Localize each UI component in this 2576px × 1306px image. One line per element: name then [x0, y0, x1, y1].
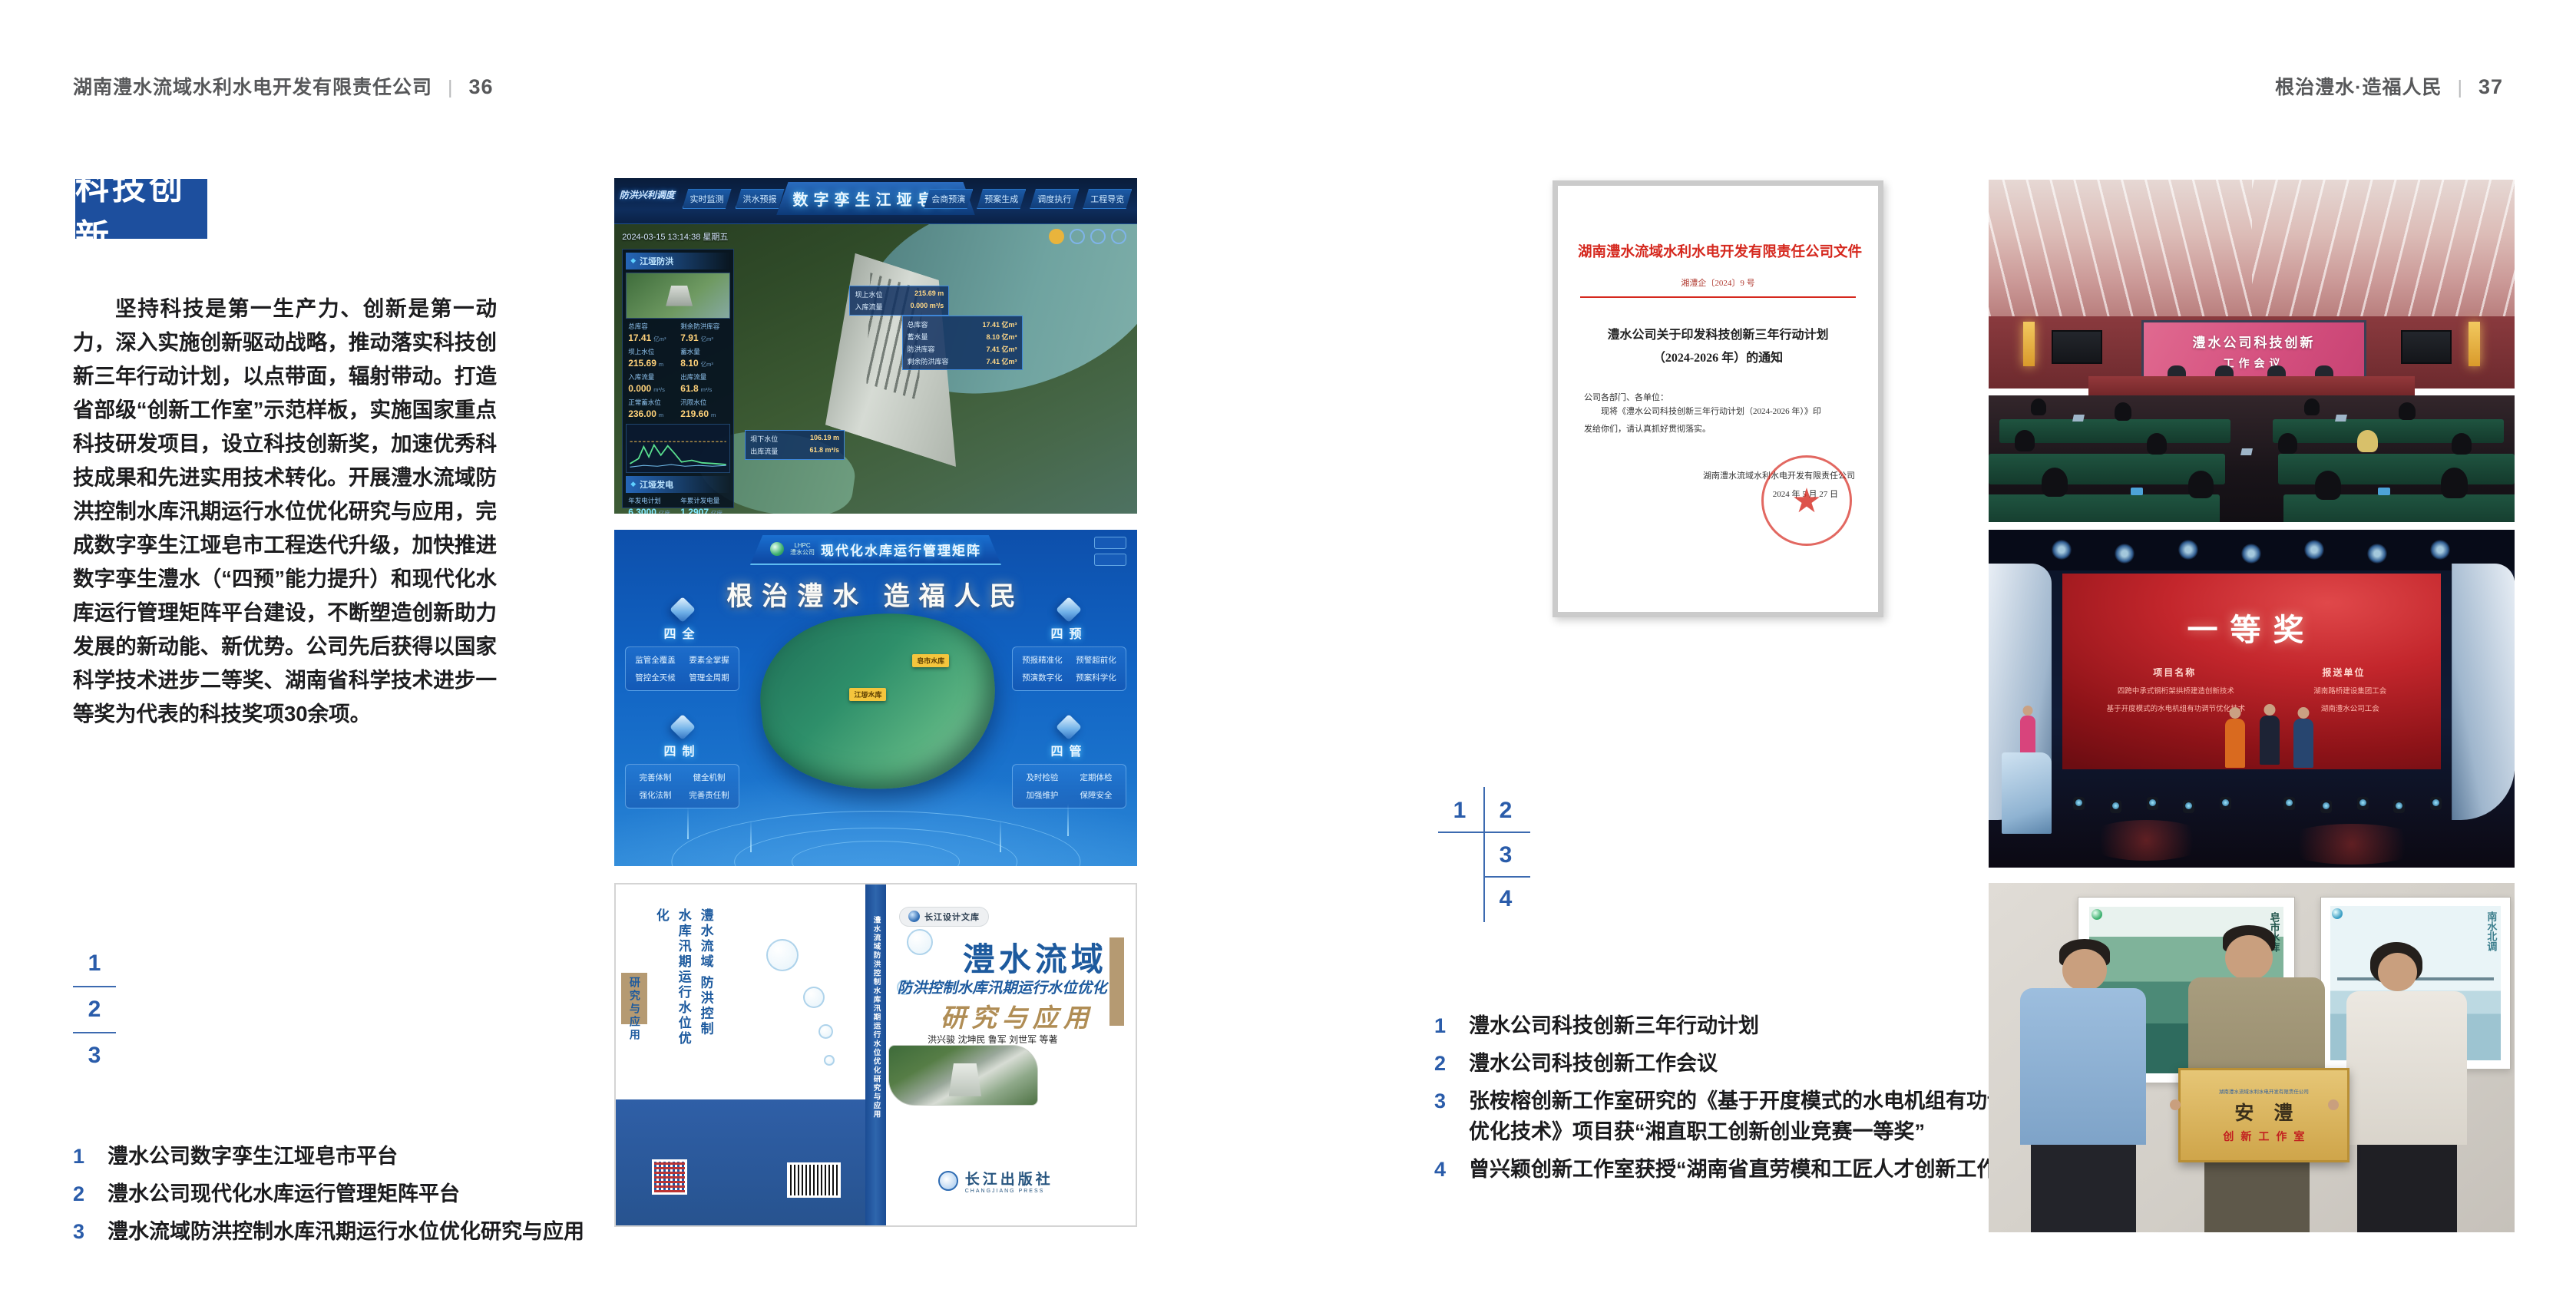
matrix-title-plate: LHPC澧水公司 现代化水库运行管理矩阵 — [750, 535, 1001, 565]
backcover-vertical-title: 澧水流域 防洪控制水库汛期运行水位优化 — [650, 908, 716, 1051]
caption-number: 3 — [73, 1216, 107, 1247]
frontcover-tan-strip — [1109, 937, 1124, 1026]
body-paragraph: 坚持科技是第一生产力、创新是第一动力，深入实施创新驱动战略，推动落实科技创新三年… — [73, 292, 497, 731]
stage-light-fixture — [2183, 800, 2194, 813]
unit-lines: 湖南路桥建设集团工会 湖南澧水公司工会 — [2274, 683, 2426, 719]
ceiling — [1989, 180, 2515, 316]
map-label-zaoshi: 皂市水库 — [912, 654, 949, 667]
caption-number: 2 — [1434, 1048, 1469, 1079]
audience-yellow-jacket — [2357, 430, 2378, 452]
seal-star-icon: ★ — [1791, 481, 1821, 521]
wall-lamp — [2469, 322, 2480, 366]
page-number-left: 36 — [469, 75, 494, 98]
figure-index-3: 3 — [73, 1033, 116, 1078]
book-title-tail: 研究与应用 — [941, 997, 1094, 1034]
audience-desk — [2283, 494, 2515, 522]
caption-text: 澧水流域防洪控制水库汛期运行水位优化研究与应用 — [107, 1216, 584, 1247]
flood-panel-title: 江垭防洪 — [640, 255, 673, 267]
caption-item: 2 澧水公司现代化水库运行管理矩阵平台 — [73, 1179, 584, 1209]
audience-silhouette — [2315, 471, 2341, 500]
stage-light-fixture — [2073, 797, 2085, 810]
audience-silhouette — [2031, 398, 2046, 415]
stat-cell: 总库容17.41亿m³ — [628, 322, 676, 345]
stage-light-fixture — [2220, 797, 2231, 810]
spotlight-icon — [2367, 544, 2387, 564]
qr-code — [652, 1159, 687, 1195]
man-blue-polo — [2020, 988, 2146, 1146]
cube-icon — [1057, 597, 1083, 623]
person-head — [2378, 953, 2417, 991]
anchor-icon: ◆ — [630, 256, 636, 265]
person-trousers — [2031, 1145, 2136, 1232]
header-separator: | — [448, 77, 454, 98]
audience-silhouette — [2147, 433, 2167, 455]
document-salutation: 公司各部门、各单位： — [1558, 391, 1878, 403]
tab-dispatch-execute: 调度执行 — [1030, 189, 1079, 209]
plaque-title: 安澧 — [2214, 1098, 2313, 1126]
figure-index-1: 1 — [73, 941, 116, 986]
barcode — [787, 1162, 841, 1198]
light-pillar — [750, 820, 752, 852]
spine-title: 澧水流域防洪控制水库汛期运行水位优化研究与应用 — [870, 916, 881, 1119]
tab-plan-generate: 预案生成 — [977, 189, 1026, 209]
lhpc-logo-icon — [2092, 909, 2102, 920]
caption-text: 澧水公司科技创新工作会议 — [1469, 1048, 1718, 1079]
person-trousers — [2204, 1152, 2310, 1232]
stat-cell: 汛限水位219.60m — [680, 398, 728, 421]
locate-icon — [1090, 229, 1106, 244]
lhpc-logo-icon — [2332, 908, 2343, 919]
innovation-studio-plaque: 湖南澧水流域水利水电开发有限责任公司 安澧 创新工作室 — [2178, 1068, 2350, 1162]
map-chip-capacity: 总库容17.41 亿m³ 蓄水量8.10 亿m³ 防洪库容7.41 亿m³ 剩余… — [902, 316, 1023, 370]
spotlight-icon — [2178, 540, 2198, 560]
magazine-spread: 湖南澧水流域水利水电开发有限责任公司|36 科技创新 坚持科技是第一生产力、创新… — [0, 0, 2576, 1306]
stage-light-fixture — [2393, 800, 2405, 813]
column-header-project: 项目名称 — [2153, 666, 2196, 679]
bubble-decoration — [824, 1055, 835, 1066]
plaque-header: 湖南澧水流域水利水电开发有限责任公司 — [2219, 1087, 2309, 1095]
screen-title-line1: 澧水公司科技创新 — [2192, 332, 2315, 351]
floor-reflection — [2278, 824, 2426, 865]
document-title: 澧水公司关于印发科技创新三年行动计划 （2024-2026 年）的通知 — [1558, 324, 1878, 371]
spotlight-icon — [2304, 540, 2324, 560]
photo-plaque-presentation: 皂市水库 南水北调 湖南澧水流域水利水电开发有限责任公司 安澧 创新工作室 — [1989, 883, 2515, 1232]
stage-light-fixture — [2147, 797, 2158, 810]
map-chip-downstream: 坝下水位106.19 m 出库流量61.8 m³/s — [745, 430, 845, 460]
power-stats-grid: 年发电计划6.3000亿度 年累计发电量1.2907亿度 月累计发电量3359.… — [626, 496, 730, 514]
caption-text: 张桉榕创新工作室研究的《基于开度模式的水电机组有功调节优化技术》项目获“湘直职工… — [1469, 1086, 2037, 1147]
hand — [2328, 1099, 2339, 1110]
company-name: 湖南澧水流域水利水电开发有限责任公司 — [73, 77, 432, 98]
flood-stats-grid: 总库容17.41亿m³ 剩余防洪库容7.91亿m³ 坝上水位215.69m 蓄水… — [626, 322, 730, 421]
backcover-subtitle: 研究与应用 — [627, 977, 643, 1042]
cube-icon — [670, 597, 696, 623]
right-figure-index: 1 2 3 4 — [1438, 787, 1530, 922]
book-scan: 澧水流域防洪控制水库汛期运行水位优化研究与应用 澧水流域 防洪控制水库汛期运行水… — [614, 883, 1137, 1227]
spotlight-icon — [2115, 544, 2135, 564]
award-title: 一等奖 — [2062, 605, 2441, 650]
stat-cell: 出库流量61.8m³/s — [680, 372, 728, 395]
caption-number: 1 — [73, 1141, 107, 1172]
caption-item: 2 澧水公司科技创新工作会议 — [1434, 1048, 2049, 1079]
person-head — [2062, 949, 2107, 991]
power-panel-header: ◆江垭发电 — [626, 476, 730, 493]
winner-orange-jacket — [2225, 719, 2245, 768]
person-trousers — [2357, 1145, 2457, 1232]
left-data-panel: ◆江垭防洪 总库容17.41亿m³ 剩余防洪库容7.91亿m³ 坝上水位215.… — [622, 249, 734, 509]
section-badge: 科技创新 — [75, 179, 207, 239]
dam-thumbnail — [626, 273, 730, 319]
caption-number: 1 — [1434, 1010, 1469, 1041]
stage-light-fixture — [2357, 797, 2369, 810]
publisher-block: 长江出版社 CHANGJIANG PRESS — [938, 1168, 1053, 1194]
series-badge: 长江设计文库 — [899, 907, 989, 927]
stage-light-fixture — [2430, 797, 2442, 810]
light-pillar — [1000, 820, 1001, 852]
audience-silhouette — [2042, 468, 2068, 497]
flood-panel-header: ◆江垭防洪 — [626, 253, 730, 269]
wall-tv — [2401, 330, 2452, 364]
caption-text: 澧水公司数字孪生江垭皂市平台 — [107, 1141, 398, 1172]
right-running-head: 根治澧水·造福人民|37 — [2275, 72, 2503, 100]
left-figure-index: 1 2 3 — [73, 941, 116, 1078]
tab-project-tour: 工程导览 — [1083, 189, 1132, 209]
poster-right-label: 南水北调 — [2484, 911, 2498, 951]
bubble-decoration — [818, 1024, 833, 1039]
fullscreen-button — [1094, 537, 1127, 549]
book-spine: 澧水流域防洪控制水库汛期运行水位优化研究与应用 — [865, 884, 886, 1225]
publisher-name-en: CHANGJIANG PRESS — [965, 1189, 1053, 1194]
stage-light-fixture — [2320, 800, 2332, 813]
dashboard-topbar: 防洪兴利调度 实时监测 洪水预报 防洪预警 数字孪生江垭皂市 会商预演 预案生成… — [614, 178, 1137, 224]
photo-award-stage: 一等奖 项目名称 报送单位 四跨中承式钢桁架拱桥建造创新技术 基于开度模式的水电… — [1989, 530, 2515, 868]
map-chip-upstream: 坝上水位215.69 m 入库流量0.000 m³/s — [849, 286, 949, 316]
stage-side-panel — [2452, 564, 2515, 820]
figure-index-3: 3 — [1490, 842, 1521, 868]
caption-number: 3 — [1434, 1086, 1469, 1116]
stat-cell: 入库流量0.000m³/s — [628, 372, 676, 395]
document-red-heading: 湖南澧水流域水利水电开发有限责任公司文件 — [1558, 241, 1878, 261]
ceiling-lights — [1989, 180, 2252, 316]
index-divider — [1483, 876, 1530, 878]
index-divider — [1483, 787, 1485, 922]
left-running-head: 湖南澧水流域水利水电开发有限责任公司|36 — [73, 72, 494, 100]
lhpc-logo-icon — [770, 542, 784, 556]
layers-icon — [1070, 229, 1085, 244]
dashboard-toolbar-icons — [1049, 229, 1126, 244]
audience-silhouette — [2441, 468, 2468, 498]
panel-siquan: 四全 监管全覆盖要素全掌握 管控全天候管理全周期 — [630, 600, 734, 691]
map-label-jiangya: 江垭水库 — [849, 688, 886, 701]
laptop — [2335, 415, 2347, 422]
page-number-right: 37 — [2478, 75, 2503, 98]
stat-cell: 年累计发电量1.2907亿度 — [680, 496, 728, 514]
winner-blue-jacket — [2293, 719, 2313, 768]
changjiang-design-logo-icon — [908, 911, 920, 922]
header-separator: | — [2457, 77, 2463, 98]
audience-silhouette — [2115, 402, 2131, 421]
tab-flood-forecast: 洪水预报 — [736, 189, 785, 209]
audience-silhouette — [2278, 433, 2297, 454]
book-title-sub: 防洪控制水库汛期运行水位优化 — [891, 975, 1107, 997]
anchor-icon: ◆ — [630, 480, 636, 488]
cube-icon — [1057, 714, 1083, 740]
red-rule — [1580, 296, 1856, 298]
caption-text: 曾兴颖创新工作室获授“湖南省直劳模和工匠人才创新工作室” — [1469, 1154, 2029, 1185]
figure-index-2: 2 — [73, 987, 116, 1032]
panel-siguan: 四管 及时检验定期体检 加强维护保障安全 — [1017, 718, 1121, 808]
tissue-box — [2131, 488, 2143, 495]
figure-index-1: 1 — [1444, 798, 1475, 824]
stat-cell: 剩余防洪库容7.91亿m³ — [680, 322, 728, 345]
matrix-title: 现代化水库运行管理矩阵 — [821, 540, 981, 559]
stat-cell: 坝上水位215.69m — [628, 347, 676, 370]
caption-number: 4 — [1434, 1154, 1469, 1185]
plaque-subtitle: 创新工作室 — [2216, 1129, 2311, 1144]
stat-cell: 年发电计划6.3000亿度 — [628, 496, 676, 514]
caption-number: 2 — [73, 1179, 107, 1209]
water-level-chart — [626, 424, 730, 473]
user-icon — [1049, 229, 1064, 244]
photo-meeting-room: 澧水公司科技创新 工作会议 — [1989, 180, 2515, 522]
presenter-suit — [2260, 716, 2280, 765]
audience-silhouette — [2452, 433, 2472, 455]
index-divider — [1438, 832, 1530, 833]
laptop — [2240, 448, 2253, 455]
panel-sizhi: 四制 完善体制健全机制 强化法制完善责任制 — [630, 718, 734, 808]
figure-matrix-platform: LHPC澧水公司 现代化水库运行管理矩阵 根治澧水 造福人民 皂市水库 江垭水库… — [614, 530, 1137, 866]
panel-siyu: 四预 预报精准化预警超前化 预演数字化预案科学化 — [1017, 600, 1121, 691]
caption-item: 3 张桉榕创新工作室研究的《基于开度模式的水电机组有功调节优化技术》项目获“湘直… — [1434, 1086, 2049, 1147]
stage-light-fixture — [2283, 797, 2295, 810]
stat-cell: 蓄水量8.10亿m³ — [680, 347, 728, 370]
bubble-decoration — [766, 939, 799, 971]
laptop — [2072, 415, 2085, 422]
audience-silhouette — [2304, 398, 2320, 415]
tab-rehearsal: 会商预演 — [924, 189, 973, 209]
power-panel-title: 江垭发电 — [640, 478, 673, 491]
light-pillar — [1067, 804, 1069, 836]
dam-photo — [888, 1045, 1038, 1106]
red-seal: ★ — [1761, 455, 1852, 546]
caption-text: 澧水公司科技创新三年行动计划 — [1469, 1010, 1759, 1041]
wall-tv — [2052, 330, 2102, 364]
tissue-box — [2378, 488, 2390, 495]
caption-item: 1 澧水公司数字孪生江垭皂市平台 — [73, 1141, 584, 1172]
book-authors: 洪兴骏 沈坤民 鲁军 刘世军 等著 — [891, 1033, 1094, 1046]
publisher-name: 长江出版社 — [965, 1168, 1053, 1189]
caption-item: 3 澧水流域防洪控制水库汛期运行水位优化研究与应用 — [73, 1216, 584, 1247]
floor-reflection — [2083, 820, 2209, 861]
led-award-screen: 一等奖 项目名称 报送单位 四跨中承式钢桁架拱桥建造创新技术 基于开度模式的水电… — [2062, 574, 2441, 769]
book-title-main: 澧水流域 — [963, 934, 1107, 980]
audience-silhouette — [2188, 471, 2214, 498]
podium — [2002, 752, 2052, 834]
wall-lamp — [2023, 322, 2035, 366]
figure-digital-twin-dashboard: 防洪兴利调度 实时监测 洪水预报 防洪预警 数字孪生江垭皂市 会商预演 预案生成… — [614, 178, 1137, 514]
figure-index-2: 2 — [1490, 798, 1521, 824]
tab-realtime-monitoring: 实时监测 — [683, 189, 732, 209]
right-captions: 1 澧水公司科技创新三年行动计划 2 澧水公司科技创新工作会议 3 张桉榕创新工… — [1434, 1010, 2049, 1185]
audience-silhouette — [2399, 402, 2416, 420]
audience-desk — [1989, 494, 2220, 522]
document-body: 现将《澧水公司科技创新三年行动计划（2024-2026 年）》印 发给你们，请认… — [1558, 403, 1878, 438]
spread-motto: 根治澧水·造福人民 — [2275, 77, 2442, 98]
menu-button — [1094, 554, 1127, 566]
spotlight-icon — [2241, 544, 2261, 564]
stat-cell: 正常蓄水位236.00m — [628, 398, 676, 421]
dashboard-timestamp: 2024-03-15 13:14:38 星期五 — [622, 230, 728, 243]
publisher-logo-icon — [938, 1171, 958, 1191]
column-header-unit: 报送单位 — [2322, 666, 2365, 679]
caption-text: 澧水公司现代化水库运行管理矩阵平台 — [107, 1179, 460, 1209]
woman-white-tee — [2346, 991, 2468, 1145]
caption-item: 1 澧水公司科技创新三年行动计划 — [1434, 1010, 2049, 1041]
logo-caption: LHPC澧水公司 — [790, 542, 815, 557]
audience-desk — [2278, 454, 2515, 484]
right-tab-group: 会商预演 预案生成 调度执行 工程导览 — [924, 189, 1132, 209]
person-head — [2225, 935, 2273, 980]
left-captions: 1 澧水公司数字孪生江垭皂市平台 2 澧水公司现代化水库运行管理矩阵平台 3 澧… — [73, 1141, 584, 1247]
audience-silhouette — [2015, 430, 2035, 451]
series-name: 长江设计文库 — [924, 911, 980, 923]
caption-item: 4 曾兴颖创新工作室获授“湖南省直劳模和工匠人才创新工作室” — [1434, 1154, 2049, 1185]
cube-icon — [670, 714, 696, 740]
bubble-decoration — [803, 987, 825, 1008]
figure-book-cover: 澧水流域防洪控制水库汛期运行水位优化研究与应用 澧水流域 防洪控制水库汛期运行水… — [614, 883, 1137, 1227]
figure-index-4: 4 — [1490, 886, 1521, 912]
document-number: 湘澧企〔2024〕9 号 — [1558, 276, 1878, 289]
settings-icon — [1111, 229, 1126, 244]
light-pillar — [687, 807, 689, 839]
figure-official-document: 湖南澧水流域水利水电开发有限责任公司文件 湘澧企〔2024〕9 号 澧水公司关于… — [1553, 180, 1883, 617]
bubble-decoration — [907, 929, 933, 955]
stage-light-fixture — [2110, 800, 2121, 813]
home-tab: 防洪兴利调度 — [620, 188, 675, 201]
ceiling-lights — [2252, 180, 2515, 316]
